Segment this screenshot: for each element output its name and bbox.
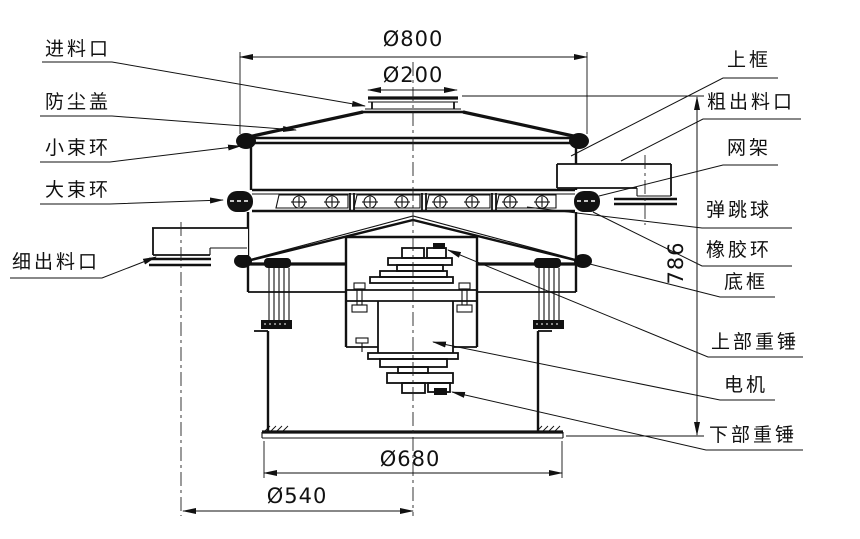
label-bottom-frame: 底框	[724, 271, 768, 293]
leader-coarse-discharge-outlet	[621, 119, 801, 161]
upper-frame	[251, 144, 576, 190]
small-clamp-ring-right	[569, 133, 589, 149]
label-small-clamp-ring: 小束环	[45, 137, 111, 159]
dust-cover-cone	[236, 112, 589, 149]
part-labels-right: 上框 粗出料口 网架 弹跳球 橡胶环 底框 上部重锤 电机 下部重锤	[433, 49, 803, 450]
lower-weight-stack	[380, 359, 453, 395]
label-large-clamp-ring: 大束环	[45, 179, 111, 201]
fine-discharge-outlet	[149, 228, 248, 265]
suspension-spring-left	[261, 258, 292, 329]
dim-inlet-diameter-text: Ø200	[383, 63, 444, 87]
label-coarse-discharge-outlet: 粗出料口	[707, 91, 795, 113]
label-lower-weight: 下部重锤	[709, 424, 797, 446]
label-bouncing-ball: 弹跳球	[706, 199, 772, 221]
label-upper-weight: 上部重锤	[711, 331, 799, 353]
label-upper-frame: 上框	[727, 49, 771, 71]
label-motor: 电机	[724, 374, 768, 396]
dim-stand-diameter: Ø540	[183, 484, 413, 511]
dim-base-diameter-text: Ø680	[380, 447, 441, 471]
suspension-spring-right	[533, 258, 564, 329]
label-dust-cover: 防尘盖	[45, 91, 111, 113]
label-mesh-frame: 网架	[727, 137, 771, 159]
anchor-hatch-right	[537, 426, 560, 431]
label-feed-inlet: 进料口	[45, 38, 111, 60]
dim-stand-diameter-text: Ø540	[267, 484, 328, 508]
dim-overall-height-text: 786	[664, 241, 688, 284]
base-plate	[262, 426, 563, 438]
technical-drawing-canvas: Ø800 Ø200 786 Ø680 Ø540 进料口 防尘盖 小束环 大束环 …	[0, 0, 860, 539]
vibrating-sieve-drawing: Ø800 Ø200 786 Ø680 Ø540 进料口 防尘盖 小束环 大束环 …	[0, 0, 860, 539]
leader-dust-cover	[40, 116, 296, 130]
label-fine-discharge-outlet: 细出料口	[12, 251, 100, 273]
dim-inlet-diameter: Ø200	[368, 63, 457, 90]
dim-top-diameter-text: Ø800	[383, 27, 444, 51]
label-rubber-ring: 橡胶环	[706, 239, 772, 261]
